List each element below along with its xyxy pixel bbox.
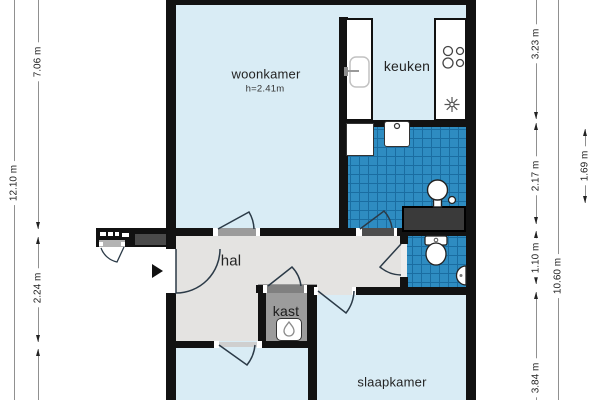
door-jamb: [257, 341, 262, 348]
threshold-bottom-room: [219, 342, 257, 347]
dimension-arrow: [534, 231, 538, 238]
wall: [400, 277, 408, 287]
dimension-arrow: [36, 222, 40, 229]
room-height-note: h=2.41m: [246, 84, 285, 95]
mailbox-mark: [108, 232, 113, 236]
dimension-label-right-mid: 2.17 m: [531, 157, 542, 196]
door-jamb: [304, 285, 307, 293]
dimension-arrow: [36, 349, 40, 356]
threshold-bathroom: [362, 228, 394, 236]
floor-plan: woonkamer h=2.41m keuken hal kast slaapk…: [0, 0, 600, 400]
dimension-arrow: [534, 277, 538, 284]
door-jamb: [256, 228, 260, 236]
dimension-arrow: [36, 335, 40, 342]
dimension-label-right-low: 1.10 m: [531, 239, 542, 278]
wall: [466, 0, 476, 400]
water-heater-icon: [276, 318, 302, 341]
room-hal-lower-floor: [166, 280, 266, 348]
mailbox-mark: [100, 232, 106, 236]
dimension-arrow: [534, 123, 538, 130]
washing-machine-icon: [384, 121, 410, 147]
entrance-corridor: [135, 234, 166, 245]
dimension-arrow: [534, 217, 538, 224]
dimension-label-left-total: 12.10 m: [9, 161, 20, 205]
dimension-label-right-inner: 1.69 m: [580, 147, 591, 186]
dimension-label-right-top: 3.23 m: [531, 25, 542, 64]
room-label-keuken: keuken: [384, 58, 430, 74]
bath-icon: [402, 206, 466, 232]
room-label-hal: hal: [221, 253, 242, 270]
wall: [260, 228, 341, 236]
door-jamb: [352, 287, 356, 295]
entrance-arrow-icon: [152, 264, 163, 278]
door-arc-porch: [101, 247, 124, 262]
wall: [166, 0, 176, 249]
front-door-opening: [166, 249, 176, 293]
wall: [166, 0, 476, 5]
kitchen-counter-right: [434, 18, 467, 121]
wall: [352, 287, 476, 295]
kitchen-counter-left: [345, 18, 373, 121]
dimension-label-right-total: 10.60 m: [553, 254, 564, 298]
dimension-arrow: [583, 196, 587, 203]
slaapkamer-doorway: [318, 287, 352, 295]
mailbox-mark: [122, 233, 129, 237]
threshold-kast: [267, 285, 304, 293]
dimension-arrow: [583, 129, 587, 136]
room-label-slaapkamer: slaapkamer: [357, 375, 426, 390]
shower-icon: [346, 123, 374, 156]
wall: [166, 341, 219, 348]
porch-door-jamb: [99, 242, 103, 246]
room-bottom-left-floor: [166, 341, 317, 400]
dimension-label-left-top: 7.06 m: [33, 43, 44, 82]
dimension-arrow: [534, 112, 538, 119]
dimension-line: [38, 0, 39, 229]
toilet-doorway: [401, 244, 407, 277]
porch-door-jamb: [121, 242, 125, 246]
mailbox-mark: [115, 232, 119, 236]
dimension-label-right-bottom: 3.84 m: [531, 359, 542, 398]
dimension-label-left-mid: 2.24 m: [33, 269, 44, 308]
threshold-woonkamer: [218, 228, 256, 236]
wall: [258, 285, 266, 347]
dimension-line: [558, 0, 559, 400]
dimension-arrow: [36, 237, 40, 244]
wall: [308, 341, 317, 400]
wall: [176, 228, 214, 236]
wall: [400, 236, 408, 244]
dimension-line: [38, 349, 39, 400]
wall: [262, 341, 317, 348]
dimension-arrow: [534, 292, 538, 299]
room-label-woonkamer: woonkamer: [232, 67, 301, 82]
room-label-kast: kast: [273, 303, 299, 319]
door-jamb: [394, 228, 397, 236]
